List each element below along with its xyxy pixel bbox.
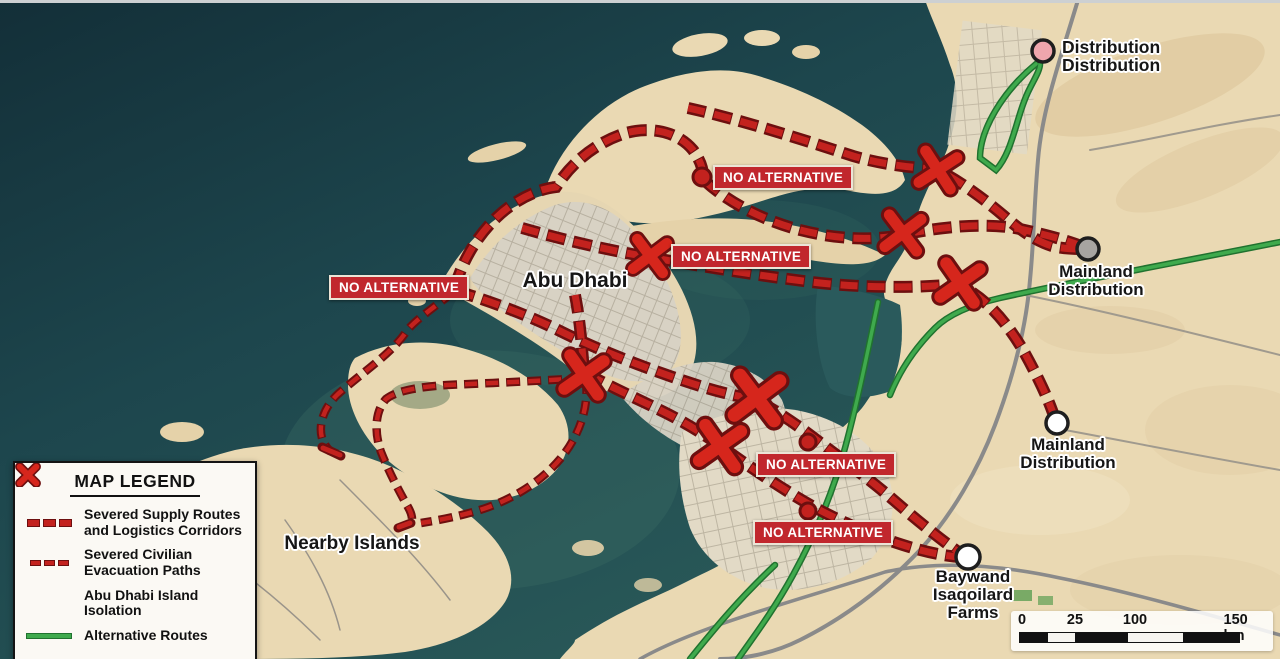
endpoint-baywand xyxy=(956,545,980,569)
map-canvas: Abu Dhabi Nearby Islands Distribution Di… xyxy=(0,0,1280,659)
endpoint-distribution-north xyxy=(1032,40,1054,62)
scale-tick: 0 xyxy=(1018,612,1026,628)
severed-supply-dash-icon xyxy=(25,519,73,527)
scale-tick: 100 xyxy=(1123,612,1147,628)
map-legend: MAP LEGEND Severed Supply Routes and Log… xyxy=(13,461,257,659)
no-alternative-badge: NO ALTERNATIVE xyxy=(713,165,853,190)
legend-item-alternative-routes: Alternative Routes xyxy=(25,628,245,644)
isolation-x-icon xyxy=(885,215,921,251)
label-mainland-southeast: Mainland Distribution xyxy=(1020,436,1115,472)
no-alternative-badge: NO ALTERNATIVE xyxy=(671,244,811,269)
no-alternative-badge: NO ALTERNATIVE xyxy=(753,520,893,545)
top-edge-strip xyxy=(0,0,1280,3)
label-nearby-islands: Nearby Islands xyxy=(284,534,419,554)
alternative-route-legend-icon xyxy=(25,633,73,639)
junction-dot xyxy=(800,434,816,450)
no-alternative-badge: NO ALTERNATIVE xyxy=(329,275,469,300)
label-distribution-north: Distribution Distribution xyxy=(1062,38,1160,75)
isolation-x-icon xyxy=(699,425,741,467)
no-alternative-badge: NO ALTERNATIVE xyxy=(756,452,896,477)
legend-item-severed-supply: Severed Supply Routes and Logistics Corr… xyxy=(25,507,245,538)
scale-bar-segments xyxy=(1019,632,1240,643)
label-abu-dhabi: Abu Dhabi xyxy=(523,270,628,292)
legend-item-severed-evacuation: Severed Civilian Evacuation Paths xyxy=(25,547,245,578)
legend-item-island-isolation: Abu Dhabi Island Isolation xyxy=(25,588,245,619)
endpoint-mainland-southeast xyxy=(1046,412,1068,434)
isolation-x-icon xyxy=(919,151,957,189)
junction-dot xyxy=(693,168,711,186)
isolation-x-icon xyxy=(734,375,779,420)
isolation-x-icon xyxy=(940,263,979,302)
junction-dot xyxy=(800,503,816,519)
isolation-x-icon xyxy=(633,239,667,273)
severed-evacuation-dash-icon xyxy=(25,560,73,566)
isolation-x-icon xyxy=(564,355,603,394)
scale-tick: 25 xyxy=(1067,612,1083,628)
label-mainland-northeast: Mainland Distribution xyxy=(1048,263,1143,299)
legend-title: MAP LEGEND xyxy=(70,471,199,497)
label-baywand-farms: Baywand Isaqoilard Farms xyxy=(933,568,1013,622)
scale-bar: 0 25 100 150 km xyxy=(1011,611,1273,651)
endpoint-mainland-northeast xyxy=(1077,238,1099,260)
